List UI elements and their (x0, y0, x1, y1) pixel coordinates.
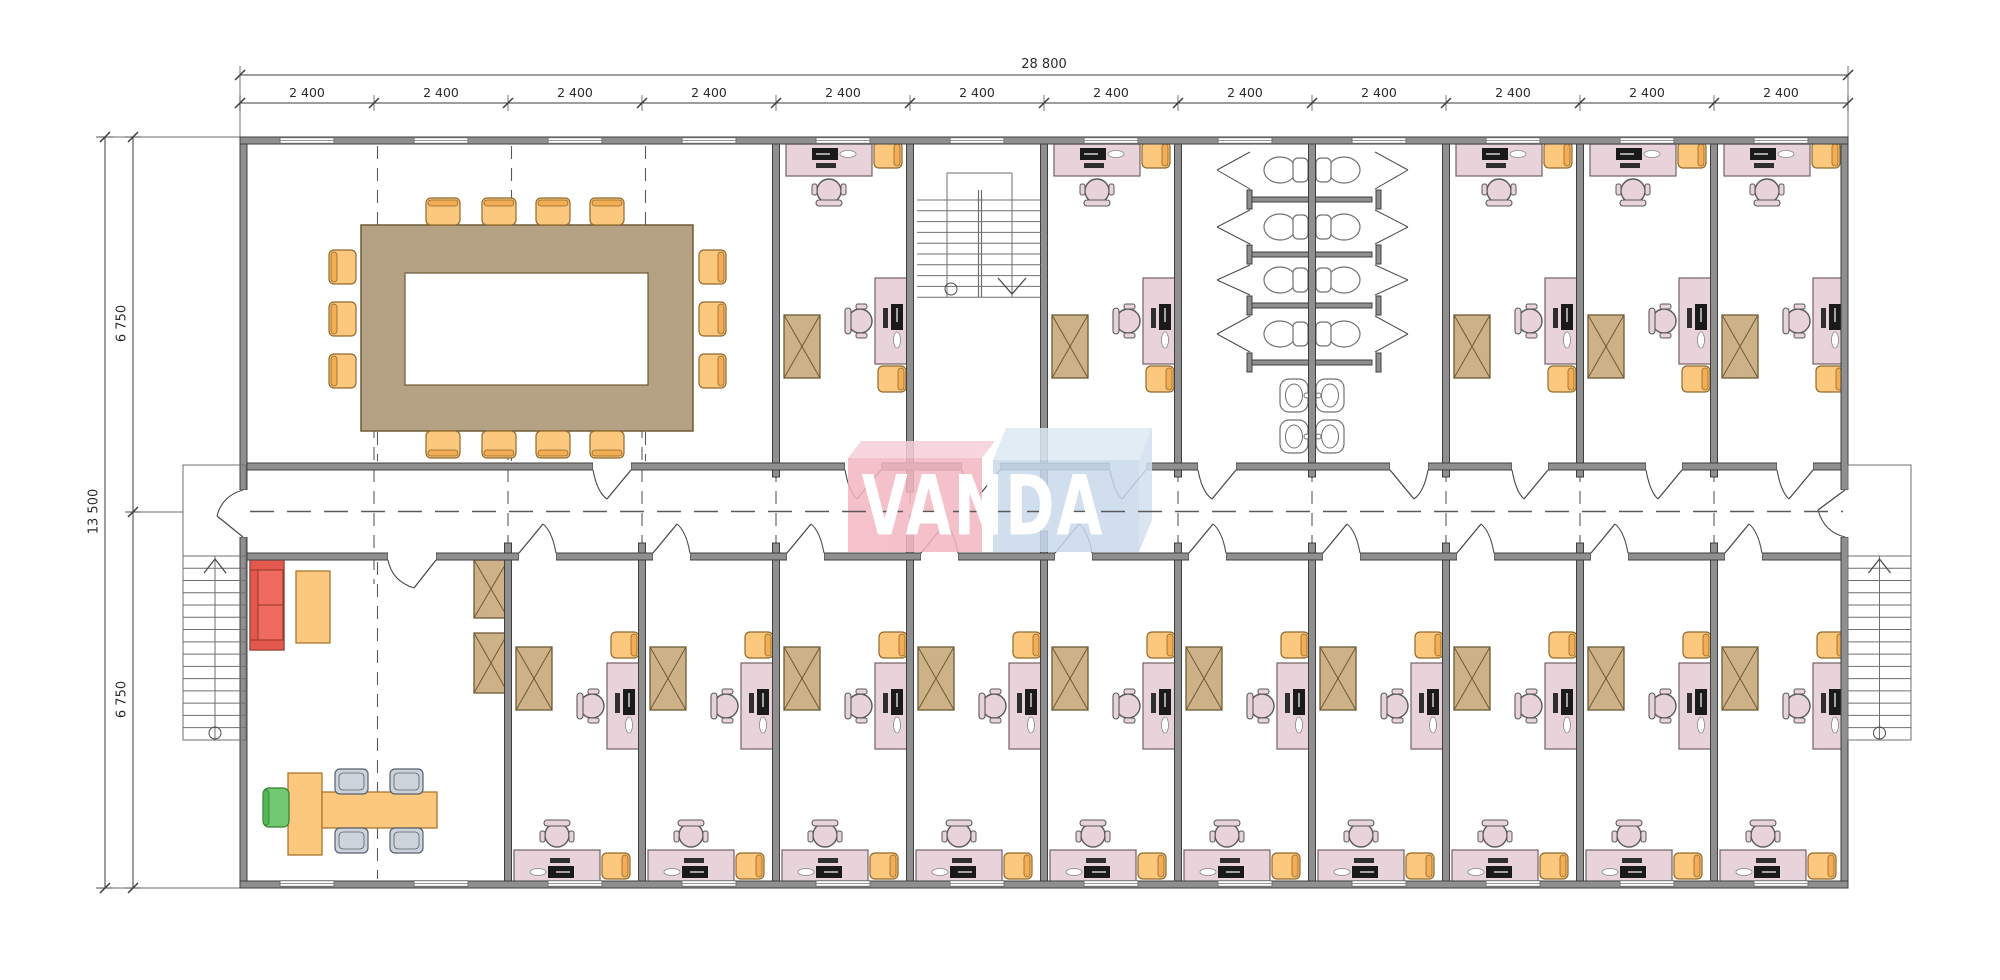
office-chair (1381, 689, 1408, 723)
office-chair (577, 689, 604, 723)
chair-seat (580, 694, 604, 718)
side-chair (1415, 632, 1443, 658)
side-chair (699, 354, 726, 388)
cabinet (650, 647, 686, 710)
desk-workstation (1452, 820, 1538, 882)
stall-door (1375, 210, 1408, 227)
desk-workstation (1783, 663, 1845, 749)
room-office-bottom-10 (1720, 632, 1845, 882)
sink (1316, 420, 1344, 453)
desk-keyboard (1488, 858, 1508, 863)
door-swing-arc (1615, 524, 1628, 553)
chair-seat (1621, 179, 1645, 203)
chair-arm (812, 184, 817, 195)
chair-arm (1080, 184, 1085, 195)
side-chair (879, 632, 907, 658)
door-swing-arc (811, 524, 824, 553)
door-swing-arc (1777, 470, 1789, 499)
stall-door-jamb (1247, 296, 1252, 315)
desk-workstation (1318, 820, 1404, 882)
door-leaf (1189, 524, 1213, 553)
chair-back (1482, 820, 1508, 826)
chair-back (331, 252, 337, 282)
desk-workstation (1783, 278, 1845, 364)
desk-pad (1564, 332, 1571, 348)
stall-door (1217, 280, 1250, 295)
partition-wall-top (773, 144, 780, 477)
chair-back (765, 634, 771, 656)
side-chair (699, 250, 726, 284)
chair-arm (1645, 184, 1650, 195)
desk-workstation (786, 144, 872, 206)
side-chair (1013, 632, 1041, 658)
toilet-tank (1293, 158, 1308, 182)
chair-back (1783, 308, 1789, 334)
stall-divider (1252, 303, 1309, 308)
exterior-wall-top (240, 137, 1848, 144)
side-chair (1544, 142, 1572, 168)
office-chair (1649, 689, 1676, 723)
partition-wall-bottom (1577, 543, 1584, 881)
side-chair (874, 142, 902, 168)
desk-workstation (1586, 820, 1672, 882)
desk-keyboard (952, 858, 972, 863)
chair-back (1348, 820, 1374, 826)
desk-keyboard (883, 308, 888, 328)
chair-seat (1384, 694, 1408, 718)
chair-back (1832, 144, 1838, 166)
chair-back (718, 252, 724, 282)
desk-workstation (1649, 663, 1711, 749)
door-opening (1198, 462, 1236, 471)
chair-back (1754, 200, 1780, 206)
dim-total-width: 28 800 (994, 57, 1094, 72)
desk-workstation (648, 820, 734, 882)
partition-wall-bottom (773, 543, 780, 881)
side-chair (602, 853, 630, 879)
reception-desk (288, 773, 322, 855)
toilet-stall (1217, 316, 1308, 352)
chair-back (631, 634, 637, 656)
chair-arm (1105, 831, 1110, 842)
chair-arm (1124, 333, 1135, 338)
room-office-bottom-3 (782, 632, 907, 882)
side-chair (1540, 853, 1568, 879)
office-chair (845, 304, 872, 338)
chair-back (1113, 693, 1119, 719)
desk-keyboard (1285, 693, 1290, 713)
desk-pad (1602, 869, 1618, 876)
door-swing-arc (1213, 524, 1226, 553)
chair-back (1703, 634, 1709, 656)
door-swing-arc (1749, 524, 1762, 553)
guest-chair (390, 828, 423, 853)
side-chair (329, 354, 356, 388)
chair-seat (817, 179, 841, 203)
side-chair (1142, 142, 1170, 168)
chair-seat (813, 823, 837, 847)
desk-workstation (1381, 663, 1443, 749)
chair-back (263, 790, 269, 825)
desk-pad (1564, 717, 1571, 733)
side-chair (1549, 632, 1577, 658)
side-chair (536, 431, 570, 458)
side-chair (1548, 366, 1576, 392)
chair-arm (808, 831, 813, 842)
partition-wall-bottom (907, 531, 914, 881)
chair-back (1426, 855, 1432, 877)
chair-arm (1750, 184, 1755, 195)
chair-arm (703, 831, 708, 842)
chair-back (538, 200, 568, 206)
chair-back (1292, 855, 1298, 877)
chair-back (577, 693, 583, 719)
side-chair (1406, 853, 1434, 879)
chair-back (1564, 144, 1570, 166)
corridor-wall-bottom (1494, 553, 1591, 560)
room-office-bottom-4 (916, 632, 1041, 882)
chair-arm (1660, 333, 1671, 338)
stall-divider (1252, 252, 1309, 257)
desk-pad (1698, 332, 1705, 348)
chair-arm (588, 718, 599, 723)
chair-back (894, 144, 900, 166)
dim-lower-half-height: 6 750 (115, 671, 130, 729)
desk-pad (1200, 869, 1216, 876)
chair-back (544, 820, 570, 826)
chair-back (845, 308, 851, 334)
room-office-bottom-8 (1452, 632, 1577, 882)
corridor-wall-top (631, 463, 845, 470)
corridor-wall-bottom (1226, 553, 1323, 560)
stall-door (1375, 227, 1408, 244)
chair-back (899, 634, 905, 656)
chair-arm (856, 689, 867, 694)
stair-landing (1848, 465, 1911, 556)
chair-back (428, 200, 458, 206)
chair-arm (1794, 718, 1805, 723)
side-chair (745, 632, 773, 658)
door-opening (1457, 552, 1494, 561)
desk-keyboard (1821, 308, 1826, 328)
desk-keyboard (1084, 163, 1104, 168)
toilet-bowl (1328, 214, 1360, 240)
chair-back (1301, 634, 1307, 656)
chair-back (1560, 855, 1566, 877)
chair-back (1435, 634, 1441, 656)
corridor-wall-top (1146, 463, 1198, 470)
chair-back (592, 450, 622, 456)
stall-door (1375, 316, 1408, 334)
stall-divider (1252, 360, 1309, 365)
dim-upper-half-height: 6 750 (115, 295, 130, 353)
side-chair (536, 198, 570, 225)
cabinet (474, 633, 508, 693)
chair-arm (1616, 184, 1621, 195)
office-chair (1515, 304, 1542, 338)
guest-chair (335, 828, 368, 853)
desk-workstation (845, 278, 907, 364)
desk-workstation (916, 820, 1002, 882)
room-office-top-1 (784, 142, 907, 392)
desk-workstation (1515, 663, 1577, 749)
side-chair (329, 250, 356, 284)
floor-plan-sheet: 28 800 2 4002 4002 4002 4002 4002 4002 4… (0, 0, 2000, 980)
stall-door-jamb (1247, 190, 1252, 209)
office-chair (1113, 304, 1140, 338)
desk-pad (1066, 869, 1082, 876)
cabinet (1052, 647, 1088, 710)
chair-arm (569, 831, 574, 842)
desk-workstation (1515, 278, 1577, 364)
corridor-wall-top (1236, 463, 1390, 470)
corridor-wall-bottom (247, 553, 388, 560)
chair-back (718, 304, 724, 334)
toilet-tank (1293, 268, 1308, 292)
chair-arm (1239, 831, 1244, 842)
chair-seat (947, 823, 971, 847)
stall-door (1217, 316, 1250, 334)
corridor-wall-top (1682, 463, 1777, 470)
stall-door-jamb (1247, 353, 1252, 372)
office-chair (1080, 179, 1114, 206)
stall-door-jamb (1247, 245, 1252, 264)
side-chair (870, 853, 898, 879)
logo-box-pink-top (848, 441, 995, 458)
door-leaf (1591, 524, 1615, 553)
office-chair (1746, 820, 1780, 847)
desk-keyboard (1620, 163, 1640, 168)
desk-keyboard (1553, 308, 1558, 328)
office-chair (1247, 689, 1274, 723)
chair-back (1694, 855, 1700, 877)
desk-pad (1832, 332, 1839, 348)
cabinet (1320, 647, 1356, 710)
chair-back (890, 855, 896, 877)
chair-back (484, 200, 514, 206)
meeting-table-center (405, 273, 648, 385)
chair-back (1568, 368, 1574, 390)
toilet-stall (1217, 265, 1308, 295)
cabinet (516, 647, 552, 710)
side-chair (1146, 366, 1174, 392)
desk-keyboard (1756, 858, 1776, 863)
logo-box-blue-top (993, 428, 1152, 460)
guest-chair (335, 769, 368, 794)
desk-keyboard (1151, 308, 1156, 328)
room-office-bottom-7 (1318, 632, 1443, 882)
interior-stair (917, 173, 1041, 297)
door-leaf (1390, 470, 1414, 499)
chair-arm (1526, 689, 1537, 694)
desk-pad (1468, 869, 1484, 876)
guest-chair (390, 769, 423, 794)
desk-workstation (979, 663, 1041, 749)
cabinet (784, 647, 820, 710)
logo-watermark-text: VANDA (857, 459, 1108, 555)
side-chair (482, 198, 516, 225)
office-chair (1344, 820, 1378, 847)
desk-pad (664, 869, 680, 876)
desk-keyboard (1354, 858, 1374, 863)
chair-back (1247, 693, 1253, 719)
door-swing-arc (593, 470, 607, 499)
chair-arm (540, 831, 545, 842)
chair-back (1113, 308, 1119, 334)
chair-back (1828, 855, 1834, 877)
desk-workstation (1720, 820, 1806, 882)
corridor-wall-bottom (1360, 553, 1457, 560)
chair-arm (1779, 184, 1784, 195)
chair-back (1515, 308, 1521, 334)
chair-seat (1483, 823, 1507, 847)
coffee-table (296, 571, 330, 643)
chair-arm (1210, 831, 1215, 842)
desk-pad (1334, 869, 1350, 876)
chair-back (678, 820, 704, 826)
chair-back (1024, 855, 1030, 877)
chair-arm (1373, 831, 1378, 842)
desk-pad (1644, 151, 1660, 158)
door-leaf (607, 470, 631, 499)
cabinet (1052, 315, 1088, 378)
office-chair (674, 820, 708, 847)
chair-arm (1482, 184, 1487, 195)
door-swing-arc (677, 524, 690, 553)
door-swing-arc (1512, 470, 1524, 499)
office-chair (812, 179, 846, 206)
sofa (250, 560, 284, 650)
cabinet (1722, 315, 1758, 378)
office-chair (1113, 689, 1140, 723)
chair-back (1381, 693, 1387, 719)
toilet-stall (1316, 316, 1408, 352)
door-opening (388, 552, 436, 561)
desk-pad (1296, 717, 1303, 733)
desk-pad (894, 717, 901, 733)
door-leaf (1789, 470, 1813, 499)
partition-wall-top (1175, 144, 1182, 477)
chair-back (816, 200, 842, 206)
desk-pad (840, 151, 856, 158)
chair-arm (1526, 718, 1537, 723)
desk-keyboard (1553, 693, 1558, 713)
office-chair (1649, 304, 1676, 338)
door-leaf (519, 524, 543, 553)
door-opening (519, 552, 556, 561)
door-leaf (1212, 470, 1236, 499)
chair-seat (1617, 823, 1641, 847)
sink-faucet (1316, 393, 1321, 398)
chair-back (1084, 200, 1110, 206)
stall-door (1217, 334, 1250, 352)
exterior-wall-bottom (240, 881, 1848, 888)
office-chair (1783, 689, 1810, 723)
side-chair (1678, 142, 1706, 168)
chair-seat (1116, 694, 1140, 718)
desk-pad (1736, 869, 1752, 876)
chair-arm (1660, 304, 1671, 309)
chair-seat (1487, 179, 1511, 203)
door-swing-arc (1414, 470, 1428, 499)
chair-seat (1116, 309, 1140, 333)
partition-wall-top (1309, 144, 1316, 477)
sofa-arm (250, 560, 284, 570)
chair-arm (1507, 831, 1512, 842)
chair-seat (848, 309, 872, 333)
partition-wall-top (1711, 144, 1718, 477)
chair-back (331, 356, 337, 386)
side-chair (736, 853, 764, 879)
corridor-wall-bottom (1628, 553, 1725, 560)
desk-pad (932, 869, 948, 876)
corridor-wall-top (247, 463, 593, 470)
stall-door (1375, 152, 1408, 170)
side-chair (426, 198, 460, 225)
stall-divider (1316, 303, 1373, 308)
partition-wall-bottom (505, 543, 512, 881)
chair-arm (1478, 831, 1483, 842)
cabinet (1588, 315, 1624, 378)
partition-wall-top (1577, 144, 1584, 477)
stall-door-jamb (1376, 190, 1381, 209)
chair-back (718, 356, 724, 386)
chair-back (979, 693, 985, 719)
desk-keyboard (684, 858, 704, 863)
chair-arm (990, 718, 1001, 723)
sofa-cushion (258, 605, 283, 640)
desk-workstation (577, 663, 639, 749)
sofa-cushion (258, 570, 283, 605)
side-chair (878, 366, 906, 392)
chair-back (1616, 820, 1642, 826)
door-swing-arc (1198, 470, 1212, 499)
chair-arm (942, 831, 947, 842)
chair-arm (1511, 184, 1516, 195)
cabinet (1588, 647, 1624, 710)
room-office-bottom-2 (648, 632, 773, 882)
side-chair (590, 198, 624, 225)
chair-back (946, 820, 972, 826)
side-chair (1812, 142, 1840, 168)
side-chair (1808, 853, 1836, 879)
chair-seat (1755, 179, 1779, 203)
toilet-bowl (1264, 214, 1296, 240)
sink-faucet (1316, 434, 1321, 439)
cabinet (1722, 647, 1758, 710)
side-chair (1138, 853, 1166, 879)
office-chair (845, 689, 872, 723)
door-opening (1840, 490, 1849, 537)
sink (1316, 379, 1344, 412)
chair-seat (545, 823, 569, 847)
desk-workstation (1724, 144, 1810, 206)
office-chair (1478, 820, 1512, 847)
office-chair (942, 820, 976, 847)
door-opening (1725, 552, 1762, 561)
chair-arm (1660, 718, 1671, 723)
toilet-tank (1316, 322, 1331, 346)
stall-door-jamb (1376, 353, 1381, 372)
chair-arm (841, 184, 846, 195)
side-chair (590, 431, 624, 458)
door-opening (653, 552, 690, 561)
chair-seat (1652, 694, 1676, 718)
chair-arm (1076, 831, 1081, 842)
dim-total-height: 13 500 (87, 480, 102, 544)
door-leaf (787, 524, 811, 553)
partition-wall-top (1443, 144, 1450, 477)
